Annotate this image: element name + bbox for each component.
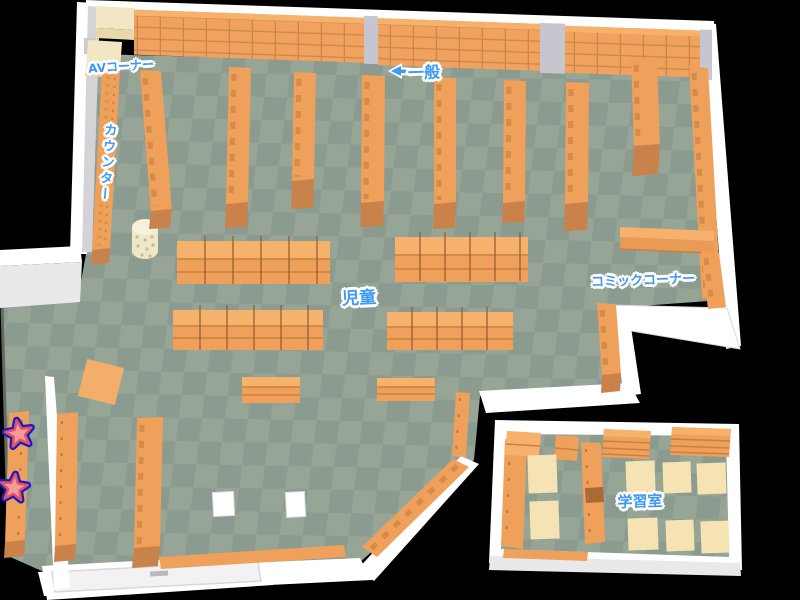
bookshelf-foot — [4, 540, 25, 558]
low-shelf — [173, 305, 323, 350]
bookshelf — [134, 417, 163, 550]
bookshelf-foot — [564, 202, 588, 231]
study-desk — [527, 454, 557, 493]
map-canvas — [0, 0, 800, 600]
av-shelf-face — [96, 28, 134, 40]
bookshelf-foot — [149, 209, 172, 229]
low-shelf — [177, 236, 330, 284]
study-desk — [696, 462, 726, 494]
area-label-children: 児童 — [341, 283, 376, 310]
area-label-general: 一般 — [408, 58, 441, 83]
bookshelf-foot — [132, 546, 160, 568]
av-shelf — [96, 6, 134, 30]
divider-gap — [585, 487, 604, 503]
low-shelf — [242, 377, 300, 403]
study-desk — [700, 521, 729, 554]
bookshelf-foot — [360, 201, 384, 227]
wall-left-notch-face — [0, 262, 82, 308]
slat-shelf — [602, 429, 651, 459]
wall-pillar — [540, 23, 565, 74]
slat-shelf — [670, 427, 731, 457]
low-shelf — [387, 307, 513, 350]
study-desk — [625, 460, 655, 492]
low-shelf — [395, 232, 528, 282]
bookshelf-foot — [502, 201, 525, 223]
bookshelf-foot — [291, 179, 314, 209]
library-floor-map: AVコーナー 一般 カウンター 児童 コミックコーナー 学習室 — [0, 0, 800, 600]
study-desk — [529, 500, 559, 539]
area-label-comic-corner: コミックコーナー — [591, 268, 696, 291]
low-shelf — [377, 378, 435, 401]
bookshelf-foot — [225, 202, 248, 228]
study-desk — [665, 520, 694, 552]
study-desk — [662, 462, 691, 494]
bookshelf-foot — [54, 544, 76, 562]
kiosk-table — [285, 491, 305, 517]
counter-foot — [91, 248, 110, 264]
area-label-study-room: 学習室 — [617, 490, 663, 513]
bookshelf-foot — [632, 144, 660, 176]
bookshelf-foot — [433, 202, 456, 229]
kiosk-table — [212, 491, 234, 516]
bookshelf — [226, 67, 251, 205]
bookshelf — [55, 412, 78, 548]
door-handle — [150, 571, 168, 577]
bookshelf-foot — [601, 373, 621, 393]
study-desk — [627, 517, 658, 550]
wall-pillar — [364, 16, 378, 64]
